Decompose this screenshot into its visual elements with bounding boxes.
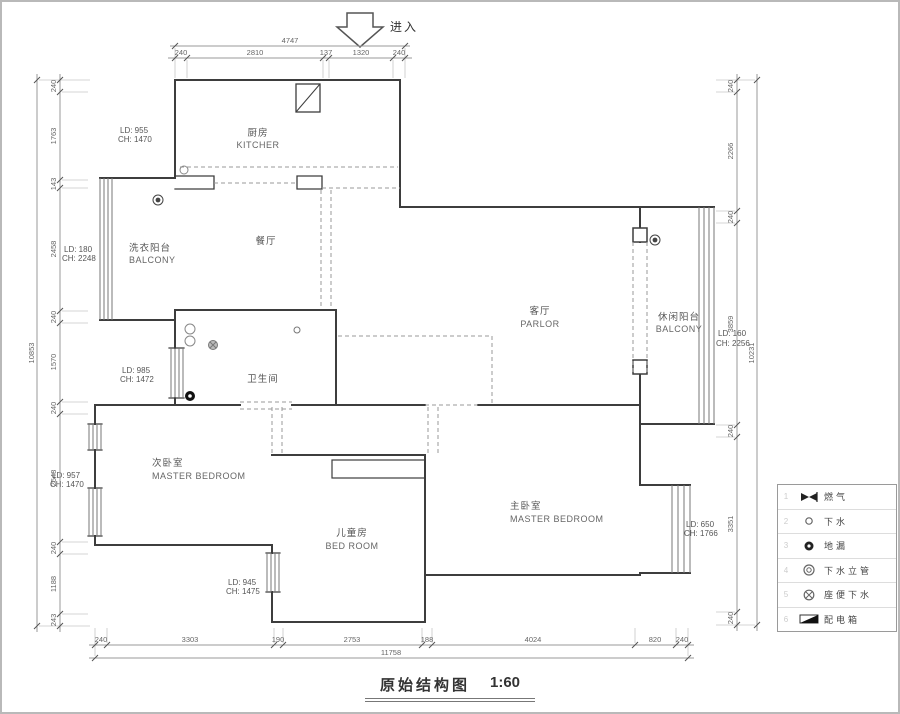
legend-label: 燃气 [824, 490, 848, 503]
kitchen-ch: CH: 1470 [118, 135, 152, 144]
floor-drain-icon [650, 235, 660, 245]
second-bedroom-label-en: MASTER BEDROOM [152, 471, 246, 481]
master-bedroom-label-zh: 主卧室 [510, 500, 542, 512]
entrance-label: 进入 [390, 20, 418, 34]
dim-bottom-5: 4024 [525, 635, 542, 644]
dim-top-0: 240 [175, 48, 188, 57]
wall-piers [633, 228, 647, 374]
legend-label: 配电箱 [824, 613, 860, 626]
leisure-balcony-ch: CH: 2256 [716, 339, 750, 348]
windows [89, 178, 714, 592]
master-bedroom-ld: LD: 650 [686, 520, 715, 529]
leisure-balcony-label-zh: 休闲阳台 [658, 311, 700, 323]
kids-room-label-zh: 儿童房 [336, 527, 368, 539]
laundry-balcony-label-en: BALCONY [129, 255, 176, 265]
dim-top-total: 4747 [282, 36, 299, 45]
dim-bottom-6: 820 [649, 635, 662, 644]
leisure-balcony-label-en: BALCONY [656, 324, 703, 334]
master-bedroom-ch: CH: 1766 [684, 529, 718, 538]
dim-right-2: 240 [726, 211, 735, 224]
dim-right-0: 240 [726, 80, 735, 93]
master-bedroom-label-en: MASTER BEDROOM [510, 514, 604, 524]
dim-left-0: 240 [49, 80, 58, 93]
dim-left-1: 1763 [49, 128, 58, 145]
legend-row-number: 1 [778, 492, 794, 501]
dining-label: 餐厅 [255, 235, 276, 247]
legend-row: 4 下水立管 [778, 559, 896, 584]
bathroom-ld: LD: 985 [122, 366, 151, 375]
dim-left-6: 240 [49, 402, 58, 415]
dim-left-8: 240 [49, 542, 58, 555]
legend-label: 座便下水 [824, 588, 872, 601]
entrance-arrow-icon: 进入 [337, 13, 418, 47]
drawing-title: 原始结构图 1:60 [0, 674, 900, 702]
dim-right-total: 10231 [747, 343, 756, 364]
dim-left-4: 240 [49, 311, 58, 324]
second-bedroom-label-zh: 次卧室 [152, 457, 184, 469]
floor-drain-icon [185, 391, 195, 401]
floor-drain-icon [794, 539, 824, 553]
toilet-drain-icon [209, 341, 218, 350]
legend-label: 下水 [824, 515, 848, 528]
dim-right-3: 3859 [726, 316, 735, 333]
dim-bottom-total: 11758 [381, 648, 401, 657]
dim-top-2: 137 [320, 48, 333, 57]
dim-right-4: 240 [726, 425, 735, 438]
drain-riser-icon [185, 324, 195, 334]
dim-left-7: 2548 [49, 470, 58, 487]
dim-left-total: 10853 [27, 343, 36, 364]
bathroom-ch: CH: 1472 [120, 375, 154, 384]
legend-row-number: 5 [778, 590, 794, 599]
legend-row: 2 下水 [778, 510, 896, 535]
legend-row: 6 配电箱 [778, 608, 896, 632]
dim-right-5: 3351 [726, 516, 735, 533]
dim-left-5: 1570 [49, 354, 58, 371]
legend-row-number: 3 [778, 541, 794, 550]
legend-row-number: 4 [778, 566, 794, 575]
dim-left-10: 243 [49, 614, 58, 627]
title-scale: 1:60 [490, 674, 520, 695]
kitchen-label-zh: 厨房 [247, 127, 268, 139]
legend-label: 下水立管 [824, 564, 872, 577]
dim-bottom-1: 3303 [182, 635, 199, 644]
dim-bottom-2: 190 [272, 635, 285, 644]
parlor-label-en: PARLOR [520, 319, 559, 329]
dim-left-9: 1188 [49, 576, 58, 592]
distribution-box-icon [794, 614, 824, 624]
dim-left-2: 143 [49, 178, 58, 191]
drain-riser-icon [185, 336, 195, 346]
dim-bottom-4: 188 [421, 635, 434, 644]
dim-right-6: 240 [726, 612, 735, 625]
legend-table: 1 燃气 2 下水 3 地漏 4 下水立管 5 座便下水 6 [777, 484, 897, 632]
fixture-symbols [153, 166, 660, 401]
laundry-ld: LD: 180 [64, 245, 93, 254]
drawing-page: 进入 [0, 0, 900, 714]
laundry-ch: CH: 2248 [62, 254, 96, 263]
drain-icon [294, 327, 300, 333]
toilet-drain-icon [794, 588, 824, 602]
bathroom-label: 卫生间 [247, 373, 279, 385]
legend-row-number: 2 [778, 517, 794, 526]
room-labels: 厨房 KITCHER 餐厅 洗衣阳台 BALCONY 卫生间 客厅 PARLOR… [129, 127, 702, 551]
dim-right-1: 2266 [726, 143, 735, 160]
walls [88, 80, 714, 622]
floor-drain-icon [153, 195, 163, 205]
dim-top-1: 2810 [247, 48, 264, 57]
dim-top-4: 240 [393, 48, 406, 57]
kitchen-ld: LD: 955 [120, 126, 149, 135]
legend-row: 1 燃气 [778, 485, 896, 510]
kids-room-closet [332, 460, 425, 478]
legend-row: 5 座便下水 [778, 583, 896, 608]
dim-left-3: 2458 [49, 241, 58, 258]
title-text: 原始结构图 [380, 674, 470, 695]
dim-bottom-0: 240 [95, 635, 108, 644]
floor-plan: 进入 [0, 0, 900, 714]
legend-label: 地漏 [824, 539, 848, 552]
drain-icon [794, 514, 824, 528]
kitchen-flue [296, 84, 320, 112]
legend-row-number: 6 [778, 615, 794, 624]
dim-bottom-7: 240 [676, 635, 689, 644]
kitchen-label-en: KITCHER [236, 140, 279, 150]
kids-room-label-en: BED ROOM [325, 541, 378, 551]
kids-room-ld: LD: 945 [228, 578, 257, 587]
title-rule [365, 698, 535, 702]
dim-bottom-3: 2753 [344, 635, 361, 644]
legend-row: 3 地漏 [778, 534, 896, 559]
drain-riser-icon [794, 563, 824, 577]
gas-valve-icon [794, 492, 824, 502]
laundry-balcony-label-zh: 洗衣阳台 [129, 242, 171, 254]
kids-room-ch: CH: 1475 [226, 587, 260, 596]
parlor-label-zh: 客厅 [529, 305, 550, 317]
dim-top-3: 1320 [353, 48, 370, 57]
